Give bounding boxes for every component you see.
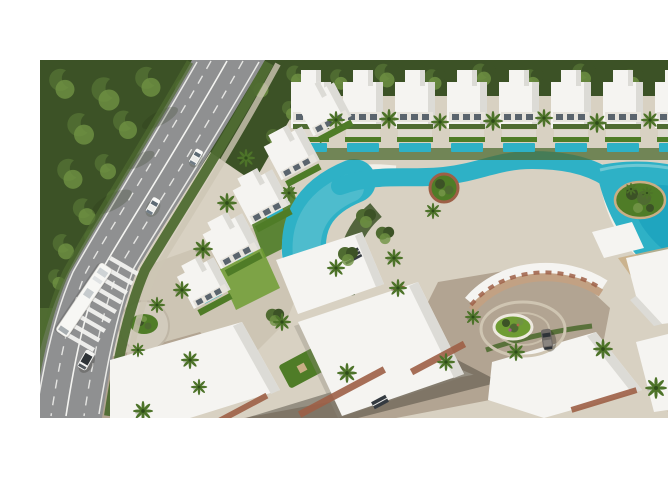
letterbox-bottom <box>40 418 668 468</box>
villa <box>447 70 487 152</box>
villa <box>603 70 643 152</box>
villa <box>395 70 435 152</box>
aerial-render-photo: Aerial 3D rendering of a modern resort-s… <box>40 16 668 468</box>
compound-render <box>40 60 668 418</box>
villa <box>551 70 591 152</box>
villa <box>499 70 539 152</box>
compound-scene <box>40 60 668 418</box>
round-planter-1 <box>430 174 458 202</box>
letterbox-top <box>40 16 668 60</box>
